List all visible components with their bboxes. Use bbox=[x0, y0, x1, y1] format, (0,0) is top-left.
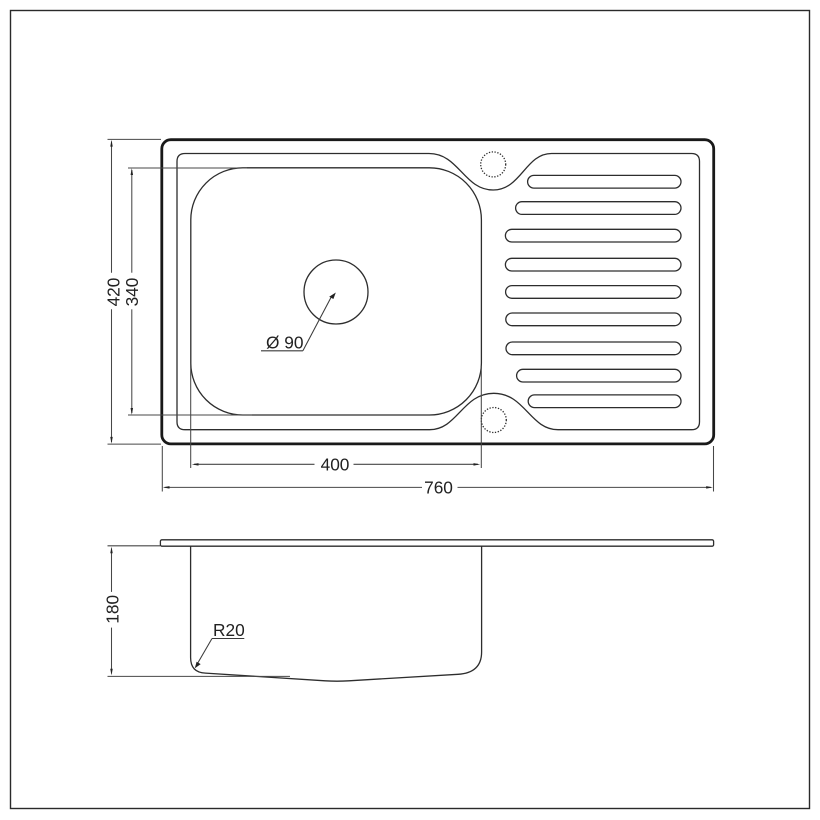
svg-text:180: 180 bbox=[102, 595, 122, 624]
svg-text:R20: R20 bbox=[213, 620, 245, 640]
svg-text:400: 400 bbox=[321, 454, 350, 474]
svg-text:420: 420 bbox=[103, 278, 123, 307]
svg-text:760: 760 bbox=[424, 478, 453, 498]
svg-text:Ø 90: Ø 90 bbox=[266, 332, 303, 352]
svg-text:340: 340 bbox=[122, 278, 142, 307]
